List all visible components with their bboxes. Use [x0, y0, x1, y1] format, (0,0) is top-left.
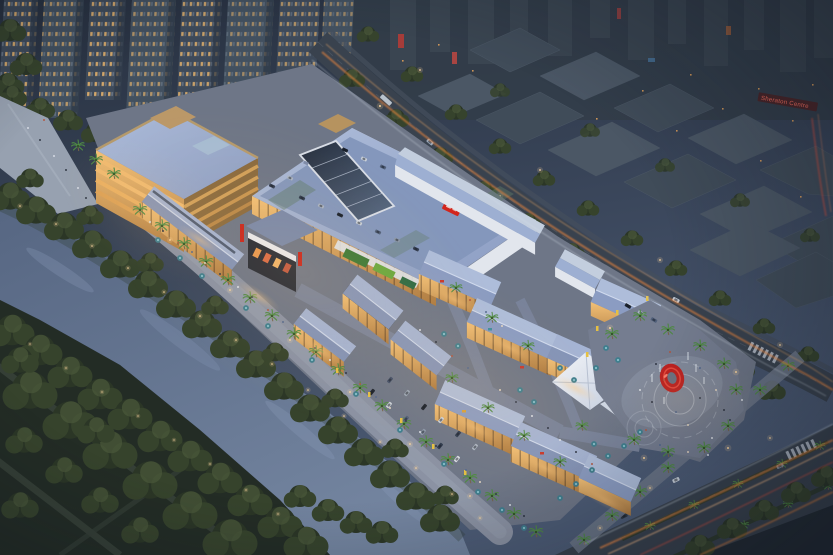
architectural-rendering: Sheraton Centre — [0, 0, 833, 555]
rendering-canvas: Sheraton Centre — [0, 0, 833, 555]
vignette — [0, 0, 833, 555]
